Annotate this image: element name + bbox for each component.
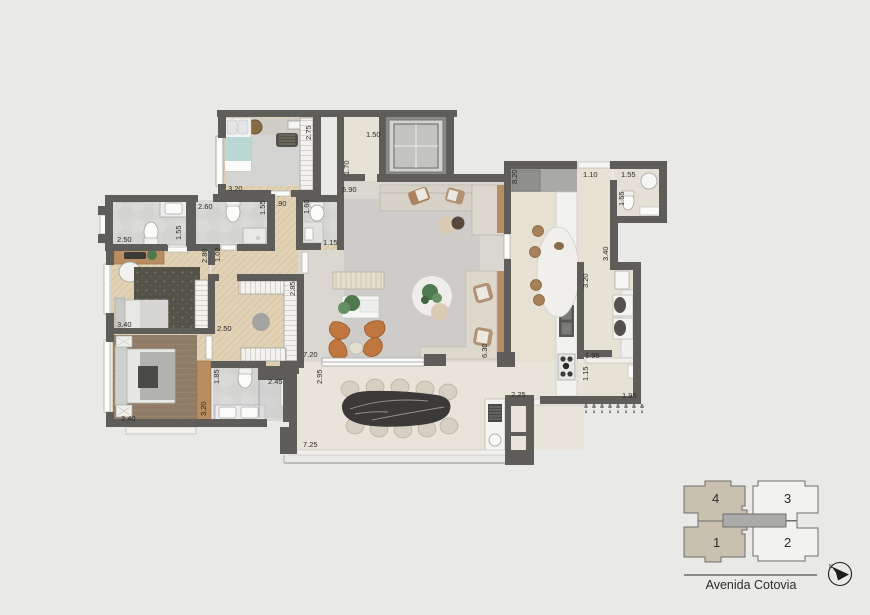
svg-text:1.50: 1.50	[366, 130, 381, 139]
svg-text:3.40: 3.40	[117, 320, 132, 329]
svg-text:2.80: 2.80	[200, 248, 209, 263]
svg-text:Avenida Cotovia: Avenida Cotovia	[706, 578, 797, 592]
svg-text:5.90: 5.90	[342, 185, 357, 194]
svg-text:3.20: 3.20	[199, 401, 208, 416]
svg-text:1.95: 1.95	[585, 351, 600, 360]
svg-text:7.20: 7.20	[303, 350, 318, 359]
svg-text:3.40: 3.40	[121, 414, 136, 423]
svg-text:1.55: 1.55	[621, 170, 636, 179]
svg-text:1.15: 1.15	[323, 238, 338, 247]
svg-text:1.02: 1.02	[213, 247, 222, 262]
svg-text:3.20: 3.20	[228, 184, 243, 193]
svg-text:2.85: 2.85	[288, 281, 297, 296]
svg-text:2.60: 2.60	[198, 202, 213, 211]
svg-text:N: N	[829, 564, 833, 570]
svg-text:2.50: 2.50	[117, 235, 132, 244]
svg-text:3.40: 3.40	[601, 246, 610, 261]
svg-text:1.15: 1.15	[581, 366, 590, 381]
svg-text:1.85: 1.85	[212, 369, 221, 384]
svg-text:1.10: 1.10	[583, 170, 598, 179]
svg-text:2.50: 2.50	[217, 324, 232, 333]
svg-text:4: 4	[712, 491, 719, 506]
svg-text:1.55: 1.55	[174, 225, 183, 240]
svg-text:2.75: 2.75	[304, 125, 313, 140]
svg-text:7.25: 7.25	[303, 440, 318, 449]
svg-text:2.25: 2.25	[511, 390, 526, 399]
svg-text:8.20: 8.20	[510, 169, 519, 184]
svg-text:1: 1	[713, 535, 720, 550]
svg-text:1.55: 1.55	[617, 191, 626, 206]
svg-text:6.30: 6.30	[480, 343, 489, 358]
svg-text:.90: .90	[276, 199, 286, 208]
svg-text:1.60: 1.60	[302, 199, 311, 214]
svg-text:1.70: 1.70	[342, 160, 351, 175]
svg-text:3.20: 3.20	[581, 273, 590, 288]
svg-text:1.55: 1.55	[258, 200, 267, 215]
svg-text:2.45: 2.45	[268, 377, 283, 386]
svg-text:3: 3	[784, 491, 791, 506]
svg-text:2.95: 2.95	[315, 369, 324, 384]
svg-text:1.95: 1.95	[622, 391, 637, 400]
svg-text:2: 2	[784, 535, 791, 550]
